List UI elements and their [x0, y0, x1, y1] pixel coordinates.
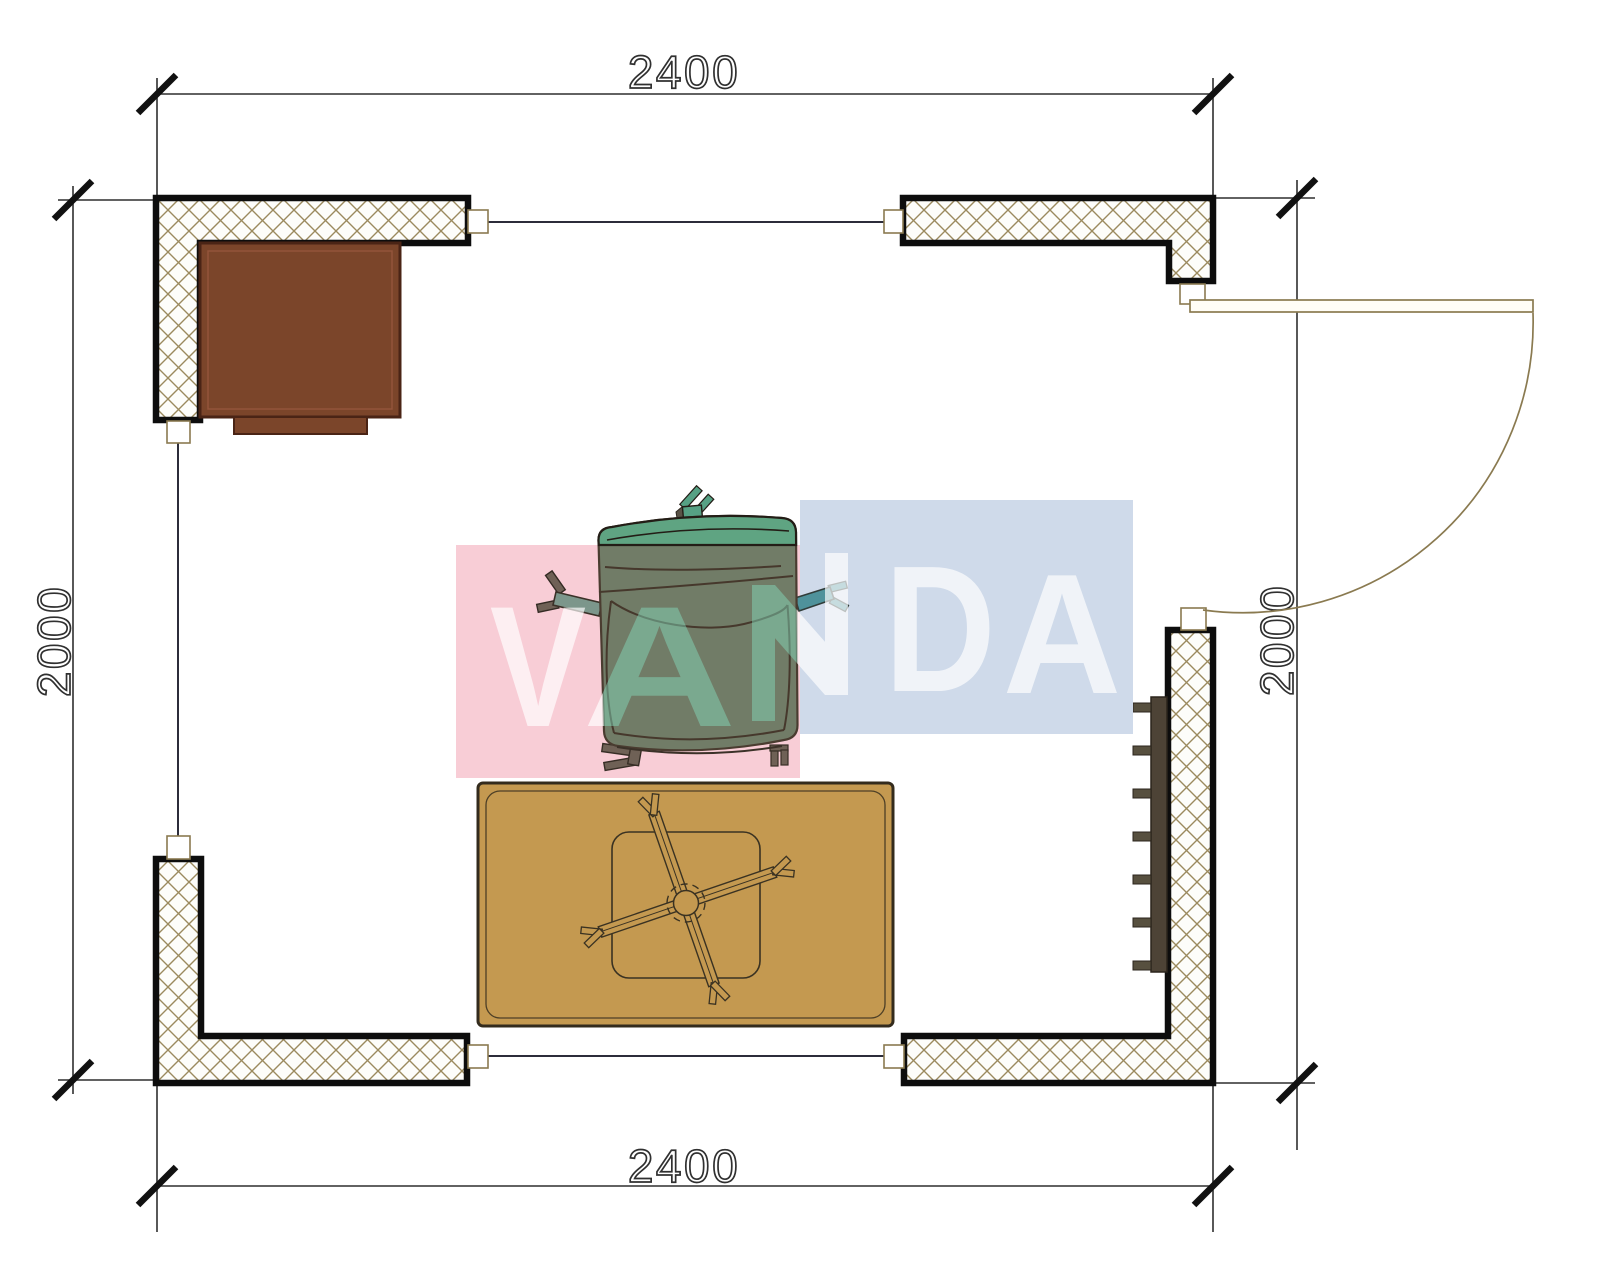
svg-text:2400: 2400: [628, 46, 740, 98]
svg-text:2400: 2400: [628, 1140, 740, 1192]
svg-text:2000: 2000: [28, 585, 80, 697]
svg-text:2000: 2000: [1251, 584, 1303, 696]
